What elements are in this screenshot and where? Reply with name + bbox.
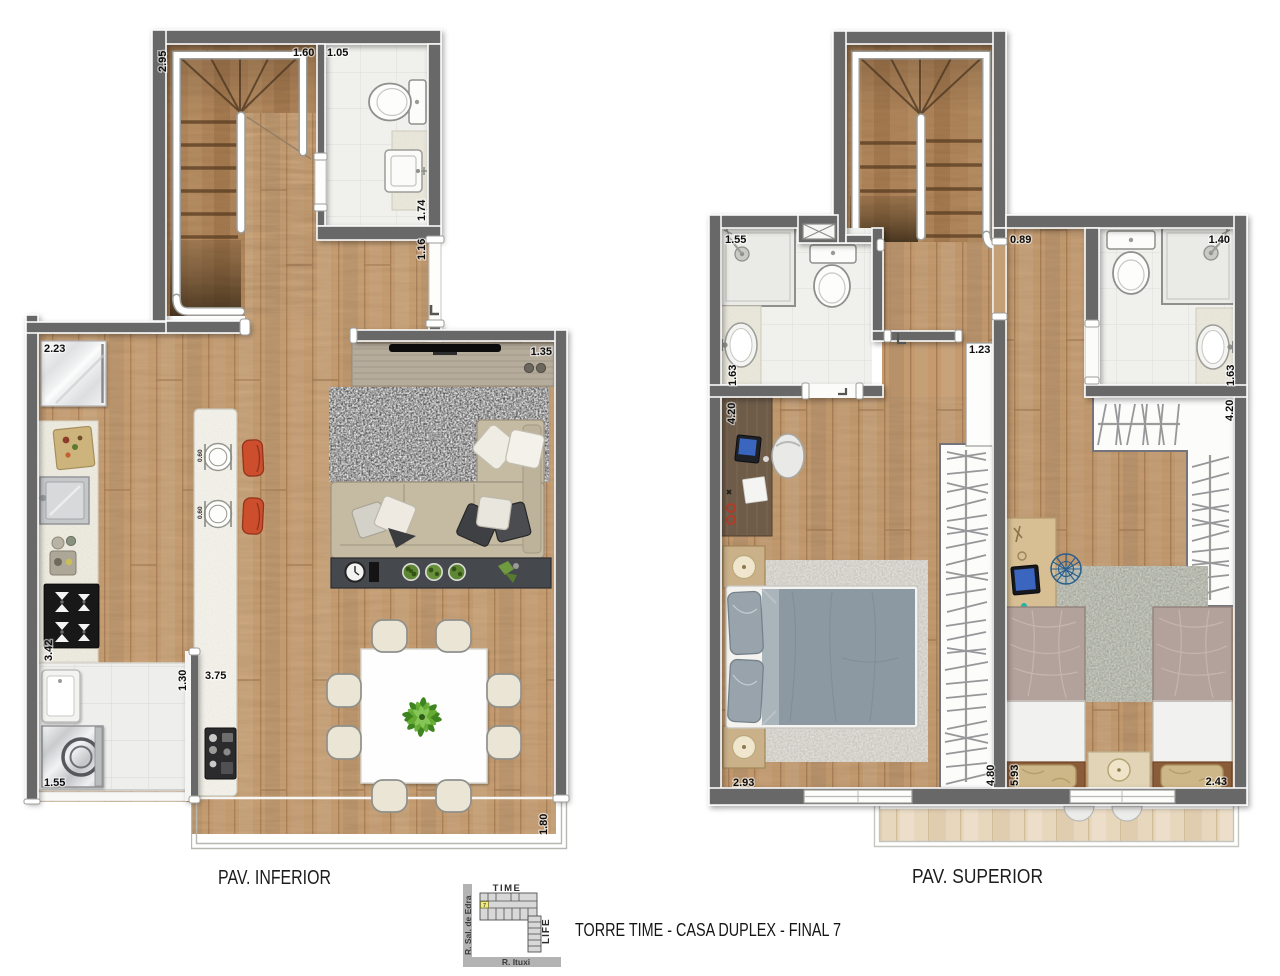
svg-text:PAV. SUPERIOR: PAV. SUPERIOR (912, 866, 1043, 888)
svg-text:1.40: 1.40 (1209, 234, 1230, 246)
svg-text:PAV. INFERIOR: PAV. INFERIOR (218, 867, 331, 889)
svg-text:1.63: 1.63 (727, 365, 739, 386)
svg-text:4.20: 4.20 (1224, 400, 1236, 421)
svg-text:5.93: 5.93 (1009, 765, 1021, 786)
svg-text:TIME: TIME (493, 883, 522, 894)
svg-text:4.20: 4.20 (726, 403, 738, 424)
svg-text:4.80: 4.80 (985, 765, 997, 786)
svg-text:3.75: 3.75 (205, 670, 226, 682)
svg-text:7: 7 (483, 903, 486, 909)
svg-text:0.89: 0.89 (1010, 234, 1031, 246)
svg-text:3.42: 3.42 (43, 640, 55, 661)
svg-text:2.95: 2.95 (157, 51, 169, 72)
svg-text:0.60: 0.60 (197, 449, 204, 462)
svg-text:1.55: 1.55 (44, 777, 65, 789)
svg-text:1.35: 1.35 (531, 346, 552, 358)
svg-text:1.23: 1.23 (969, 344, 990, 356)
svg-text:1.60: 1.60 (293, 47, 314, 59)
svg-text:1.74: 1.74 (416, 199, 428, 221)
svg-text:1.16: 1.16 (416, 239, 428, 260)
svg-text:1.30: 1.30 (177, 670, 189, 691)
svg-text:0.60: 0.60 (197, 506, 204, 519)
svg-text:1.55: 1.55 (725, 234, 746, 246)
svg-text:1.63: 1.63 (1225, 365, 1237, 386)
svg-text:R. Ituxi: R. Ituxi (502, 957, 530, 967)
svg-text:2.23: 2.23 (44, 343, 65, 355)
svg-text:1.80: 1.80 (538, 814, 550, 835)
svg-text:1.05: 1.05 (327, 47, 348, 59)
svg-text:R. Sal. de Edra: R. Sal. de Edra (463, 895, 473, 955)
svg-text:2.43: 2.43 (1206, 776, 1227, 788)
svg-text:LIFE: LIFE (541, 918, 552, 944)
svg-text:TORRE TIME - CASA DUPLEX - FIN: TORRE TIME - CASA DUPLEX - FINAL 7 (575, 919, 841, 940)
svg-text:2.93: 2.93 (733, 777, 754, 789)
